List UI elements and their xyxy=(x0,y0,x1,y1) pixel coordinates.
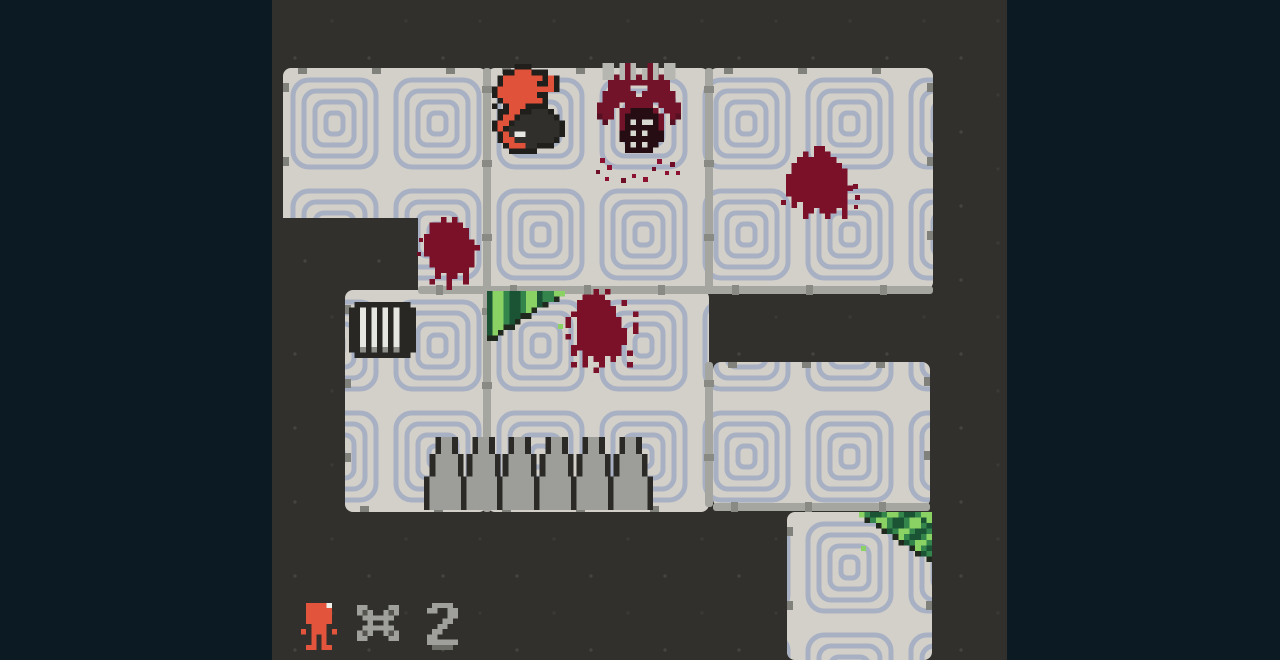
hud-player-icon xyxy=(301,603,337,650)
game-viewport[interactable]: 2 xyxy=(272,0,1007,660)
hud-multiply-icon xyxy=(357,605,399,641)
hud-lives-count xyxy=(427,603,458,650)
hud xyxy=(272,0,1007,660)
letterbox-right xyxy=(1007,0,1280,660)
letterbox-left xyxy=(0,0,272,660)
game-screen: 2 xyxy=(0,0,1280,660)
